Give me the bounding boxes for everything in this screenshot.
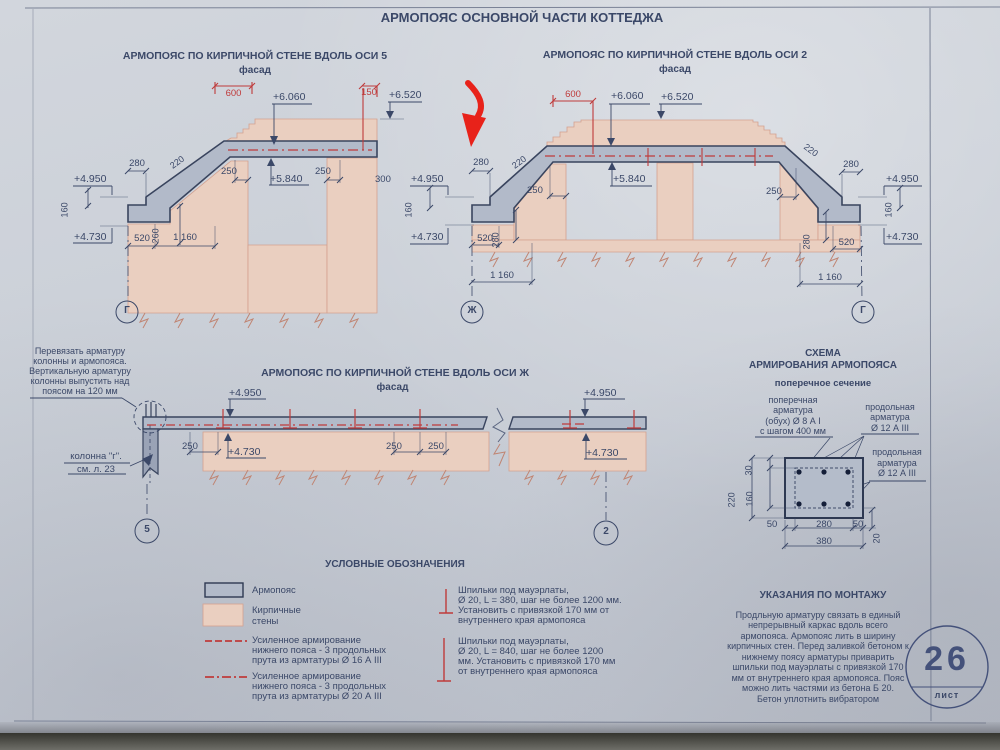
elev-4950-right: +4.950 [584, 388, 616, 399]
legend-title: УСЛОВНЫЕ ОБОЗНАЧЕНИЯ [290, 560, 500, 571]
dim-250-left: 250 [527, 186, 543, 196]
elev-4950-left: +4.950 [411, 174, 443, 185]
elev-4730: +4.730 [74, 232, 106, 243]
dim-250-right: 250 [766, 187, 782, 197]
dim-50-left: 50 [762, 520, 782, 530]
dim-250-right: 250 [315, 167, 331, 177]
drawing-axis-zh-subtitle: фасад [250, 383, 535, 394]
dim-1160-left: 1 160 [484, 271, 520, 281]
elev-4950-left: +4.950 [229, 388, 261, 399]
drawing-axis2-subtitle: фасад [510, 65, 840, 76]
schema-title-2: АРМИРОВАНИЯ АРМОПОЯСА [743, 361, 903, 372]
dim-380: 380 [808, 537, 840, 547]
label-longitudinal-bottom: продольная арматура Ø 12 А III [862, 447, 932, 479]
sheet-number-label: лист [906, 691, 988, 700]
legend-studs840-4: от внутреннего края армопояса [458, 667, 597, 677]
dim-300: 300 [375, 175, 391, 185]
dim-250-c: 250 [428, 442, 444, 452]
label-transverse-rebar: поперечная арматура (обух) Ø 8 А I с шаг… [743, 395, 843, 436]
montage-text: Продльную арматуру связать в единый непр… [712, 610, 924, 704]
dim-160: 160 [746, 491, 755, 506]
elev-4730-right: +4.730 [886, 232, 918, 243]
drawing-axis5-title: АРМОПОЯС ПО КИРПИЧНОЙ СТЕНЕ ВДОЛЬ ОСИ 5 [90, 51, 420, 62]
axis-circle-g-right: Г [852, 306, 874, 317]
note-tie-rebar: Перевязать арматуру колонны и армопояса.… [24, 346, 136, 396]
label-longitudinal-top: продольная арматура Ø 12 А III [855, 402, 925, 433]
schema-title-1: СХЕМА [743, 349, 903, 360]
elev-6520: +6.520 [389, 90, 421, 101]
dim-220: 220 [728, 492, 737, 507]
drawing-axis5-subtitle: фасад [90, 66, 420, 77]
legend-brick-label-1: Кирпичные [252, 606, 301, 616]
dim-280: 280 [126, 159, 148, 169]
red-annotation-arrow [462, 83, 486, 147]
elev-6520: +6.520 [661, 92, 693, 103]
dim-250-a: 250 [182, 442, 198, 452]
dim-160: 160 [61, 202, 70, 217]
legend-reinf20-3: прута из армтатуры Ø 20 А III [252, 692, 382, 702]
dim-1160-right: 1 160 [812, 273, 848, 283]
dim-600: 600 [215, 89, 252, 99]
elev-5840: +5.840 [270, 174, 302, 185]
elev-5840: +5.840 [613, 174, 645, 185]
dim-280-pier-left: 280 [492, 232, 501, 247]
dim-600: 600 [555, 90, 591, 100]
dim-160-left: 160 [405, 202, 414, 217]
page-title: АРМОПОЯС ОСНОВНОЙ ЧАСТИ КОТТЕДЖА [290, 11, 754, 25]
sheet-number: 26 [906, 640, 988, 679]
blueprint-sheet: АРМОПОЯС ОСНОВНОЙ ЧАСТИ КОТТЕДЖА АРМОПОЯ… [0, 0, 1000, 750]
axis-circle-g-left: Г [116, 306, 138, 317]
axis-circle-2: 2 [595, 527, 617, 538]
dim-520-right: 520 [833, 238, 860, 248]
dim-20: 20 [873, 533, 882, 543]
legend-studs380-4: внутреннего края армопояса [458, 616, 585, 626]
dim-280-left: 280 [469, 158, 493, 168]
dim-1160: 1 160 [167, 233, 203, 243]
dim-280: 280 [810, 520, 838, 530]
montage-title: УКАЗАНИЯ ПО МОНТАЖУ [718, 591, 928, 602]
elev-4730-left: +4.730 [411, 232, 443, 243]
photo-background-strip [0, 733, 1000, 750]
axis-circle-5: 5 [136, 525, 158, 536]
dim-250-left: 250 [221, 167, 237, 177]
schema-subtitle: поперечное сечение [743, 379, 903, 389]
elev-6060: +6.060 [611, 91, 643, 102]
paper-bottom-shadow [0, 722, 1000, 733]
dim-250-b: 250 [386, 442, 402, 452]
elev-4730-right: +4.730 [586, 448, 618, 459]
axis-circle-zh: Ж [461, 306, 483, 317]
elev-4730-left: +4.730 [228, 447, 260, 458]
dim-280-right: 280 [839, 160, 863, 170]
dim-260: 260 [152, 228, 161, 243]
drawing-axis2-title: АРМОПОЯС ПО КИРПИЧНОЙ СТЕНЕ ВДОЛЬ ОСИ 2 [510, 50, 840, 61]
legend-brick-label-2: стены [252, 617, 278, 627]
elev-4950: +4.950 [74, 174, 106, 185]
legend-symbols [203, 583, 453, 681]
legend-reinf16-3: прута из армтатуры Ø 16 А III [252, 656, 382, 666]
dim-150: 150 [352, 88, 386, 98]
dim-280-pier-right: 280 [803, 234, 812, 249]
dim-160-right: 160 [885, 202, 894, 217]
dim-50-right: 50 [848, 520, 868, 530]
elev-6060: +6.060 [273, 92, 305, 103]
elev-4950-right: +4.950 [886, 174, 918, 185]
note-column: колонна "г". см. л. 23 [58, 452, 134, 475]
legend-armopoyas-label: Армопояс [252, 586, 296, 596]
dim-30: 30 [745, 465, 754, 475]
drawing-axis-zh-title: АРМОПОЯС ПО КИРПИЧНОЙ СТЕНЕ ВДОЛЬ ОСИ Ж [250, 368, 540, 379]
